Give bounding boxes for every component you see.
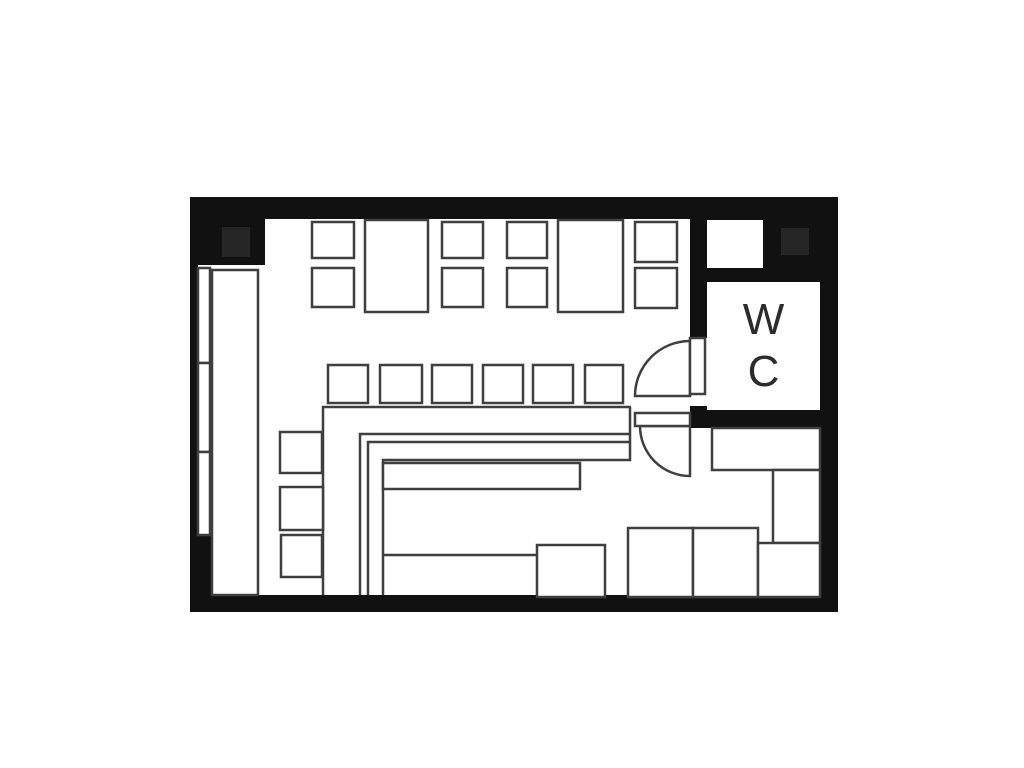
kitchen-table	[537, 545, 605, 597]
counter-stool-5	[533, 365, 573, 403]
chair-top-4b	[635, 268, 677, 308]
cabinet-right	[712, 428, 820, 470]
chair-left-3	[281, 535, 322, 577]
counter-stool-1	[328, 365, 368, 403]
window-panel-2	[198, 363, 210, 452]
table-bottom-2	[693, 528, 758, 597]
wc-door-leaf	[690, 338, 705, 394]
chair-left-1	[280, 432, 322, 473]
chair-top-1a	[312, 222, 354, 258]
wall-wc-left	[690, 282, 707, 338]
service-door-swing	[640, 426, 690, 476]
table-top-2	[558, 220, 623, 312]
chair-top-3a	[507, 222, 547, 258]
window-panel-3	[198, 452, 210, 535]
kitchen-bar	[383, 463, 580, 489]
chair-top-2a	[442, 222, 483, 258]
column-top-left	[222, 227, 250, 257]
counter-stool-2	[380, 365, 422, 403]
service-door-leaf	[635, 413, 690, 426]
wc-room-label: W C	[707, 282, 820, 410]
chair-top-3b	[507, 268, 547, 307]
counter-bottom-right	[758, 543, 820, 597]
window-panel-1	[198, 268, 210, 363]
wall-wc-bottom	[690, 410, 838, 428]
counter-stool-6	[585, 365, 623, 403]
table-top-1	[365, 220, 428, 312]
wc-door-swing	[635, 341, 690, 396]
counter-stool-3	[432, 365, 472, 403]
table-bottom-1	[628, 528, 693, 597]
storage-right	[773, 470, 820, 543]
floor-plan-drawing	[0, 0, 1024, 768]
chair-left-2	[280, 487, 323, 530]
chair-top-1b	[312, 268, 354, 307]
wc-label-line2: C	[748, 346, 780, 398]
counter-stool-4	[483, 365, 523, 403]
wall-bench	[212, 270, 258, 595]
chair-top-2b	[442, 268, 483, 307]
column-top-right	[781, 228, 809, 255]
chair-top-4a	[635, 222, 677, 262]
wc-label-line1: W	[743, 294, 785, 346]
entrance-recess	[707, 220, 763, 268]
floor-plan-page: W C	[0, 0, 1024, 768]
